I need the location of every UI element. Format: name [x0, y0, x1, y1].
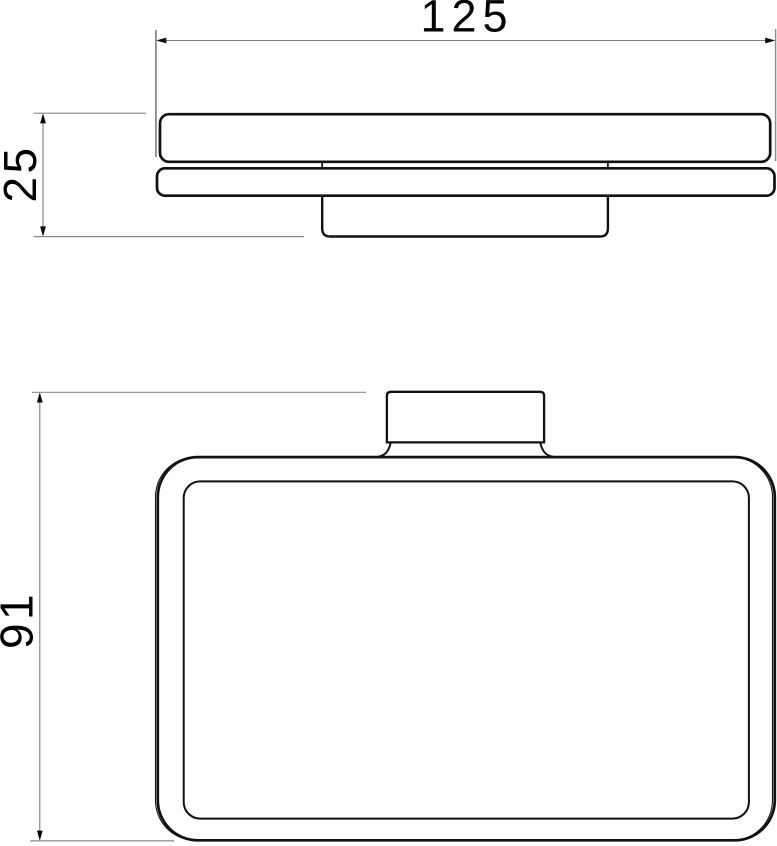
svg-text:125: 125	[421, 0, 514, 42]
svg-text:91: 91	[0, 591, 42, 649]
svg-text:25: 25	[0, 145, 46, 203]
